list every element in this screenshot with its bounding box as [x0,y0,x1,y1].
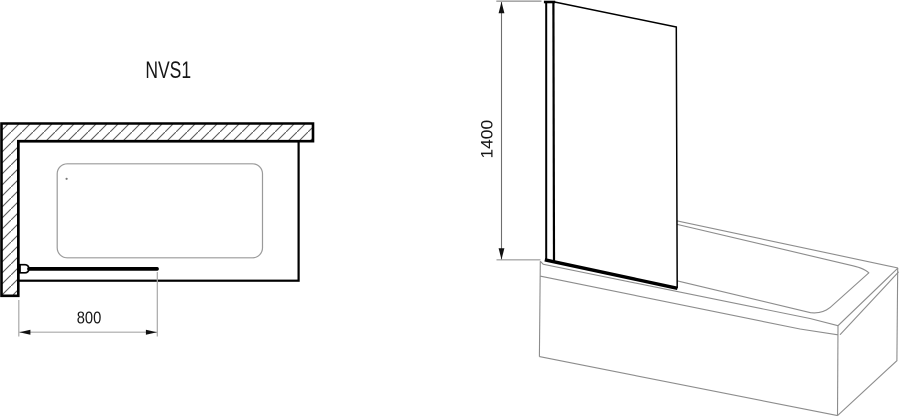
svg-text:NVS1: NVS1 [145,58,191,84]
svg-text:1400: 1400 [477,120,497,159]
svg-text:800: 800 [77,308,102,327]
